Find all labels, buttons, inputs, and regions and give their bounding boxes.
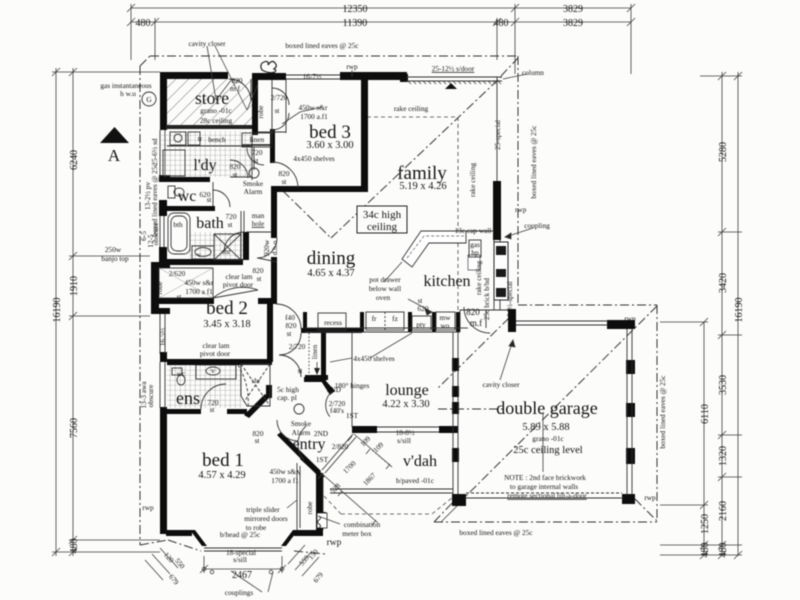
svg-text:robe: robe [305,502,314,515]
svg-text:mirrored doors: mirrored doors [244,514,288,523]
svg-text:2/720: 2/720 [271,93,288,102]
svg-text:3.60 x 3.00: 3.60 x 3.00 [306,140,353,151]
svg-text:st: st [228,220,233,229]
svg-text:4.57 x 4.29: 4.57 x 4.29 [198,470,245,481]
svg-text:shr: shr [222,247,231,256]
svg-text:st: st [287,329,292,338]
svg-text:s/sill: s/sill [397,436,411,445]
svg-text:meter box: meter box [342,529,372,538]
svg-text:m.f: m.f [470,318,482,328]
svg-text:rwp: rwp [327,538,342,548]
svg-text:rwp: rwp [142,503,154,512]
svg-text:1320: 1320 [718,446,729,466]
svg-text:m f: m f [230,84,240,93]
svg-text:l'dy: l'dy [193,157,216,174]
svg-text:to garage internal walls: to garage internal walls [510,482,578,491]
svg-text:double garage: double garage [496,398,597,418]
svg-text:5.19 x 4.26: 5.19 x 4.26 [399,181,446,192]
svg-text:480: 480 [136,18,151,29]
svg-text:shr: shr [252,376,261,385]
svg-text:st: st [255,436,260,445]
svg-text:st: st [210,405,215,414]
svg-text:1250: 1250 [700,514,711,534]
svg-text:14½-special: 14½-special [505,281,514,316]
svg-text:A: A [108,146,121,165]
svg-text:d.h.o: d.h.o [270,240,279,255]
svg-text:v: v [197,250,201,259]
svg-text:34c high: 34c high [363,209,402,221]
svg-text:kitchen: kitchen [423,273,470,290]
svg-text:remote sectional tilt-a-door: remote sectional tilt-a-door [507,491,587,500]
svg-text:b/head @ 25c: b/head @ 25c [220,530,261,539]
svg-text:store: store [195,88,229,108]
svg-text:boxed lined eaves @ 25c: boxed lined eaves @ 25c [150,163,159,237]
svg-text:450w s&r: 450w s&r [270,467,300,476]
svg-text:2/620: 2/620 [169,269,186,278]
svg-text:v'dah: v'dah [403,453,437,470]
svg-text:fz: fz [392,314,398,323]
svg-text:16.5½: 16.5½ [158,327,167,346]
svg-text:f40's: f40's [330,406,344,415]
svg-text:recess: recess [324,318,342,327]
svg-text:dining: dining [307,248,356,269]
svg-text:3829: 3829 [563,18,583,29]
svg-text:1ST: 1ST [316,455,329,464]
svg-text:pty: pty [416,320,426,329]
svg-text:cap. pl: cap. pl [277,393,296,402]
svg-text:820: 820 [466,307,480,317]
svg-text:st: st [282,177,287,186]
svg-text:4x450 shelves: 4x450 shelves [353,354,395,363]
svg-text:boxed lined eaves @ 25c: boxed lined eaves @ 25c [658,375,667,449]
svg-text:st: st [275,106,280,115]
svg-text:450w s&r: 450w s&r [185,278,215,287]
svg-text:linen: linen [310,344,319,359]
svg-text:cavity closer: cavity closer [188,39,226,48]
svg-text:couplings: couplings [225,588,254,597]
svg-text:below wall: below wall [369,284,401,293]
svg-text:pot drawer: pot drawer [369,275,401,284]
svg-text:28c ceiling: 28c ceiling [200,116,233,125]
svg-text:bed 2: bed 2 [206,298,248,319]
svg-text:12350: 12350 [343,4,368,15]
svg-text:7560: 7560 [69,418,80,438]
svg-text:4.22 x 3.30: 4.22 x 3.30 [382,399,429,410]
svg-text:620: 620 [418,304,429,313]
svg-text:triple slider: triple slider [246,505,280,514]
svg-text:fr: fr [372,314,377,323]
svg-text:3530: 3530 [718,375,729,395]
svg-text:13c cap wall: 13c cap wall [455,226,492,235]
svg-text:2160: 2160 [718,501,729,521]
svg-text:ceiling: ceiling [367,221,397,233]
svg-text:6240: 6240 [69,150,80,170]
svg-text:tr: tr [198,134,203,143]
svg-text:b/paved -01c: b/paved -01c [396,476,435,485]
svg-text:Alarm: Alarm [292,428,311,437]
svg-text:480: 480 [718,543,729,558]
svg-text:wo: wo [441,321,450,330]
svg-text:wc: wc [178,188,197,205]
svg-text:G: G [146,95,152,104]
svg-text:Alarm: Alarm [244,187,263,196]
svg-text:pivot door: pivot door [200,349,231,358]
svg-text:boxed lined eaves @ 25c: boxed lined eaves @ 25c [459,528,533,537]
svg-text:4x450 shelves: 4x450 shelves [293,154,335,163]
svg-text:rake ceiling: rake ceiling [468,163,477,198]
svg-text:bed 1: bed 1 [202,450,244,471]
svg-text:column: column [522,68,544,77]
svg-text:pivot door: pivot door [223,280,254,289]
svg-text:1910: 1910 [69,276,80,296]
svg-text:wc: wc [177,369,186,378]
svg-text:st: st [257,274,262,283]
svg-text:16190: 16190 [52,298,63,323]
svg-text:rwp: rwp [644,493,656,502]
svg-text:3.45 x 3.18: 3.45 x 3.18 [203,319,250,330]
svg-text:25c ceiling level: 25c ceiling level [513,445,582,456]
svg-text:1700 a.f1: 1700 a.f1 [300,112,328,121]
svg-text:5.89 x 5.88: 5.89 x 5.88 [522,422,569,433]
svg-text:st: st [233,170,238,179]
svg-text:25-special: 25-special [493,120,502,150]
svg-text:ens: ens [176,388,200,408]
svg-text:bth: bth [173,220,183,229]
svg-text:450w s&r: 450w s&r [299,103,329,112]
svg-text:3420: 3420 [718,273,729,293]
svg-text:1700 a f1: 1700 a f1 [185,287,213,296]
svg-text:h w.u: h w.u [120,89,136,98]
svg-text:bench: bench [208,135,226,144]
svg-text:2ND: 2ND [327,385,341,394]
svg-text:3829: 3829 [563,4,583,15]
svg-text:rake ceiling: rake ceiling [394,104,429,113]
svg-text:25-6½ sd: 25-6½ sd [150,138,159,166]
svg-text:grano -01c: grano -01c [532,434,564,443]
svg-text:st: st [177,292,182,301]
svg-text:st: st [298,366,303,375]
svg-text:linen: linen [250,135,265,144]
svg-text:bath: bath [196,215,224,232]
svg-text:4.65 x 4.37: 4.65 x 4.37 [307,268,354,279]
svg-text:Smoke: Smoke [291,419,311,428]
svg-text:rwp: rwp [346,62,358,71]
svg-text:cavity closer: cavity closer [482,380,520,389]
svg-text:16190: 16190 [734,298,745,323]
svg-text:250w: 250w [105,245,122,254]
svg-text:entry: entry [293,436,326,453]
svg-text:2ND: 2ND [314,429,328,438]
svg-text:boxed lined eaves @ 25c: boxed lined eaves @ 25c [285,41,359,50]
svg-text:obscure: obscure [146,385,155,408]
svg-text:2/820: 2/820 [332,442,349,451]
svg-text:v: v [211,366,215,375]
svg-text:st: st [207,195,212,204]
svg-text:480: 480 [700,543,711,558]
svg-text:coupling: coupling [524,221,550,230]
svg-text:NOTE : 2nd face brickwork: NOTE : 2nd face brickwork [504,473,586,482]
svg-text:lounge: lounge [385,382,429,399]
svg-text:s/sill: s/sill [233,555,247,564]
svg-text:2/720: 2/720 [289,342,306,351]
svg-text:11390: 11390 [343,18,368,29]
svg-text:480: 480 [69,539,80,554]
svg-text:25-12½ s/door: 25-12½ s/door [432,64,475,73]
svg-text:6110: 6110 [700,404,711,424]
svg-text:25c brick b/hd: 25c brick b/hd [482,278,491,321]
svg-text:5280: 5280 [718,142,729,162]
svg-text:banjo top: banjo top [101,254,129,263]
svg-text:rwp: rwp [624,314,636,323]
svg-text:2467: 2467 [232,570,252,581]
svg-text:grano -01c: grano -01c [200,106,232,115]
svg-text:480: 480 [494,18,509,29]
svg-text:robe: robe [155,282,164,295]
svg-text:robe: robe [256,106,265,119]
svg-text:hole: hole [252,219,265,228]
svg-text:hp: hp [471,248,479,257]
svg-text:st: st [254,156,259,165]
svg-text:boxed lined eaves @ 25c: boxed lined eaves @ 25c [529,125,538,199]
svg-text:oven: oven [376,293,391,302]
svg-text:rwp: rwp [515,205,527,214]
svg-text:16-7½: 16-7½ [303,72,322,81]
svg-text:1ST: 1ST [346,411,359,420]
svg-text:1700 a f1: 1700 a f1 [271,476,299,485]
